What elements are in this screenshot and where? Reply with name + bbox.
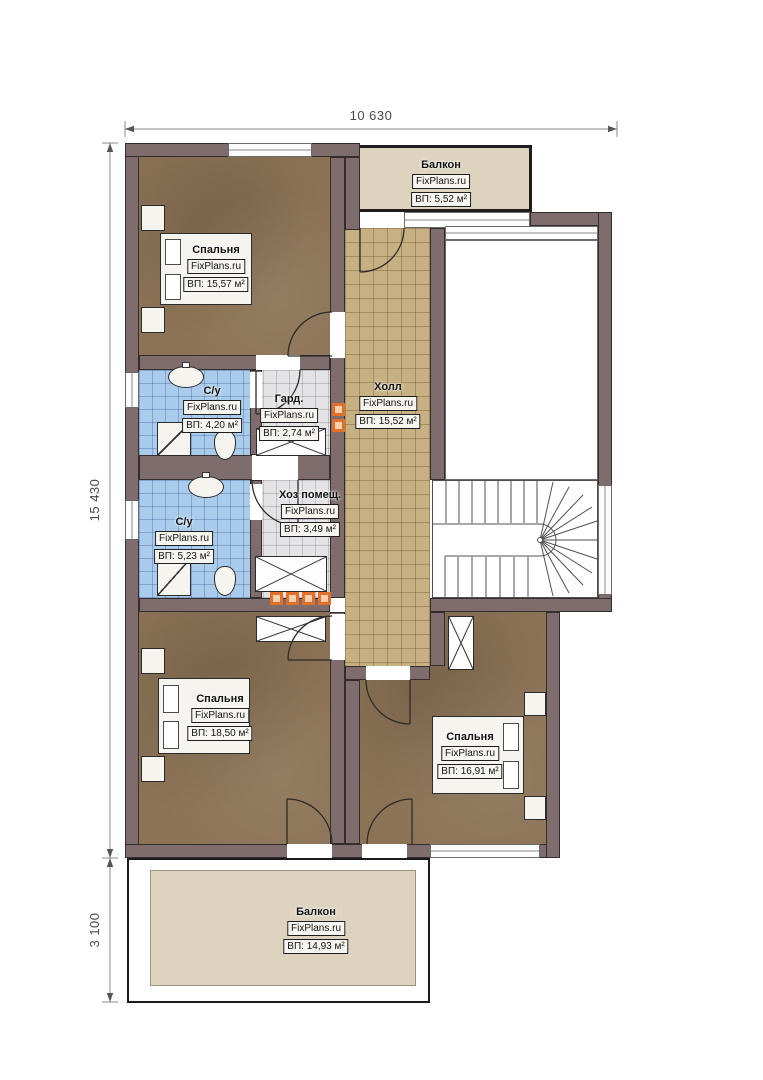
room-name: Спальня xyxy=(196,693,244,705)
room-label-balcony-top: Балкон FixPlans.ru ВП: 5,52 м² xyxy=(411,159,471,207)
room-label-bathroom-2: С/у FixPlans.ru ВП: 5,23 м² xyxy=(154,516,214,564)
dim-arrow xyxy=(107,993,113,1002)
room-label-bedroom-1: Спальня FixPlans.ru ВП: 15,57 м² xyxy=(183,244,248,292)
window-stair-right xyxy=(598,485,612,595)
nightstand xyxy=(141,756,165,782)
dim-arrow xyxy=(125,126,134,132)
watermark: FixPlans.ru xyxy=(155,531,213,546)
wall-between-bedrooms xyxy=(345,680,360,844)
room-label-wardrobe: Гард. FixPlans.ru ВП: 2,74 м² xyxy=(259,393,319,441)
room-name: Гард. xyxy=(275,393,304,405)
room-label-hall: Холл FixPlans.ru ВП: 15,52 м² xyxy=(355,381,420,429)
watermark: FixPlans.ru xyxy=(187,259,245,274)
dimension-left xyxy=(102,143,118,858)
pillow xyxy=(503,761,519,789)
door-opening-balcony-right xyxy=(362,844,407,858)
dim-arrow xyxy=(107,858,113,867)
room-area: ВП: 18,50 м² xyxy=(187,726,252,741)
room-name: Хоз помещ. xyxy=(279,489,341,501)
door-opening-balcony-left xyxy=(287,844,332,858)
wall-exterior-right-lower xyxy=(546,612,560,858)
window-bedroom1-top xyxy=(228,143,312,157)
room-label-bedroom-3: Спальня FixPlans.ru ВП: 16,91 м² xyxy=(437,731,502,779)
room-area: ВП: 15,52 м² xyxy=(355,414,420,429)
room-name: Балкон xyxy=(421,159,461,171)
room-label-balcony-bottom: Балкон FixPlans.ru ВП: 14,93 м² xyxy=(283,906,348,954)
watermark: FixPlans.ru xyxy=(281,504,339,519)
room-area: ВП: 14,93 м² xyxy=(283,939,348,954)
room-area: ВП: 5,52 м² xyxy=(411,192,471,207)
wall-stair-bottom xyxy=(430,598,612,612)
pillow xyxy=(503,723,519,751)
closet-icon xyxy=(256,616,326,642)
room-area: ВП: 4,20 м² xyxy=(182,418,242,433)
window-bathroom-1 xyxy=(125,372,139,408)
floor-stairwell xyxy=(432,480,598,598)
dimension-bottom-left xyxy=(102,858,118,1002)
vent-shaft-icon xyxy=(332,403,345,416)
door-opening-utility xyxy=(252,455,298,480)
room-name: Спальня xyxy=(192,244,240,256)
dimension-top xyxy=(125,121,617,137)
dimension-left-label: 15 430 xyxy=(87,479,102,522)
nightstand xyxy=(524,796,546,820)
pillow xyxy=(163,685,179,713)
window-bedroom3-bottom xyxy=(430,844,540,858)
floor-plan-canvas: 10 630 15 430 3 100 xyxy=(0,0,763,1080)
nightstand xyxy=(524,692,546,716)
floor-hall xyxy=(345,228,430,666)
watermark: FixPlans.ru xyxy=(359,396,417,411)
dim-arrow xyxy=(608,126,617,132)
vent-shaft-icon xyxy=(270,592,283,605)
wall-hall-right xyxy=(430,228,445,480)
wall-bedroom3-upperleft xyxy=(430,612,445,666)
dimension-top-label: 10 630 xyxy=(350,108,393,123)
wall-pier-top xyxy=(345,157,360,230)
watermark: FixPlans.ru xyxy=(441,746,499,761)
glazing-void-top xyxy=(445,226,598,240)
room-area: ВП: 15,57 м² xyxy=(183,277,248,292)
room-name: Балкон xyxy=(296,906,336,918)
dimension-bottom-left-label: 3 100 xyxy=(87,912,102,947)
door-opening-bathroom-2 xyxy=(250,484,262,520)
closet-icon xyxy=(448,616,474,670)
room-name: Холл xyxy=(374,381,402,393)
door-opening-balcony-top xyxy=(360,212,404,228)
pillow xyxy=(163,721,179,749)
watermark: FixPlans.ru xyxy=(260,408,318,423)
watermark: FixPlans.ru xyxy=(191,708,249,723)
window-bathroom-2 xyxy=(125,500,139,540)
pillow xyxy=(165,239,181,265)
sink-icon xyxy=(188,476,224,498)
watermark: FixPlans.ru xyxy=(412,174,470,189)
room-area: ВП: 2,74 м² xyxy=(259,426,319,441)
room-label-bedroom-2: Спальня FixPlans.ru ВП: 18,50 м² xyxy=(187,693,252,741)
closet-icon xyxy=(255,556,327,592)
door-opening-bedroom-3 xyxy=(366,666,410,680)
tap-icon xyxy=(182,362,190,368)
nightstand xyxy=(141,648,165,674)
room-name: С/у xyxy=(175,516,192,528)
door-opening-wardrobe xyxy=(256,355,300,370)
vent-shaft-icon xyxy=(332,419,345,432)
nightstand xyxy=(141,205,165,231)
vent-shaft-icon xyxy=(302,592,315,605)
room-area: ВП: 16,91 м² xyxy=(437,764,502,779)
dim-arrow xyxy=(107,143,113,152)
wall-bedroom1-bottom xyxy=(139,355,330,370)
room-name: Спальня xyxy=(446,731,494,743)
room-area: ВП: 3,49 м² xyxy=(280,522,340,537)
vent-shaft-icon xyxy=(318,592,331,605)
door-opening-bedroom-1 xyxy=(330,312,345,358)
dim-arrow xyxy=(107,849,113,858)
watermark: FixPlans.ru xyxy=(183,400,241,415)
tap-icon xyxy=(202,472,210,478)
nightstand xyxy=(141,307,165,333)
room-label-utility: Хоз помещ. FixPlans.ru ВП: 3,49 м² xyxy=(279,489,341,537)
floor-open-void xyxy=(445,240,598,480)
pillow xyxy=(165,274,181,300)
room-area: ВП: 5,23 м² xyxy=(154,549,214,564)
wall-bath-divider-band xyxy=(139,455,330,480)
watermark: FixPlans.ru xyxy=(287,921,345,936)
door-opening-bedroom-2 xyxy=(330,614,345,660)
room-name: С/у xyxy=(203,385,220,397)
vent-shaft-icon xyxy=(286,592,299,605)
room-label-bathroom-1: С/у FixPlans.ru ВП: 4,20 м² xyxy=(182,385,242,433)
